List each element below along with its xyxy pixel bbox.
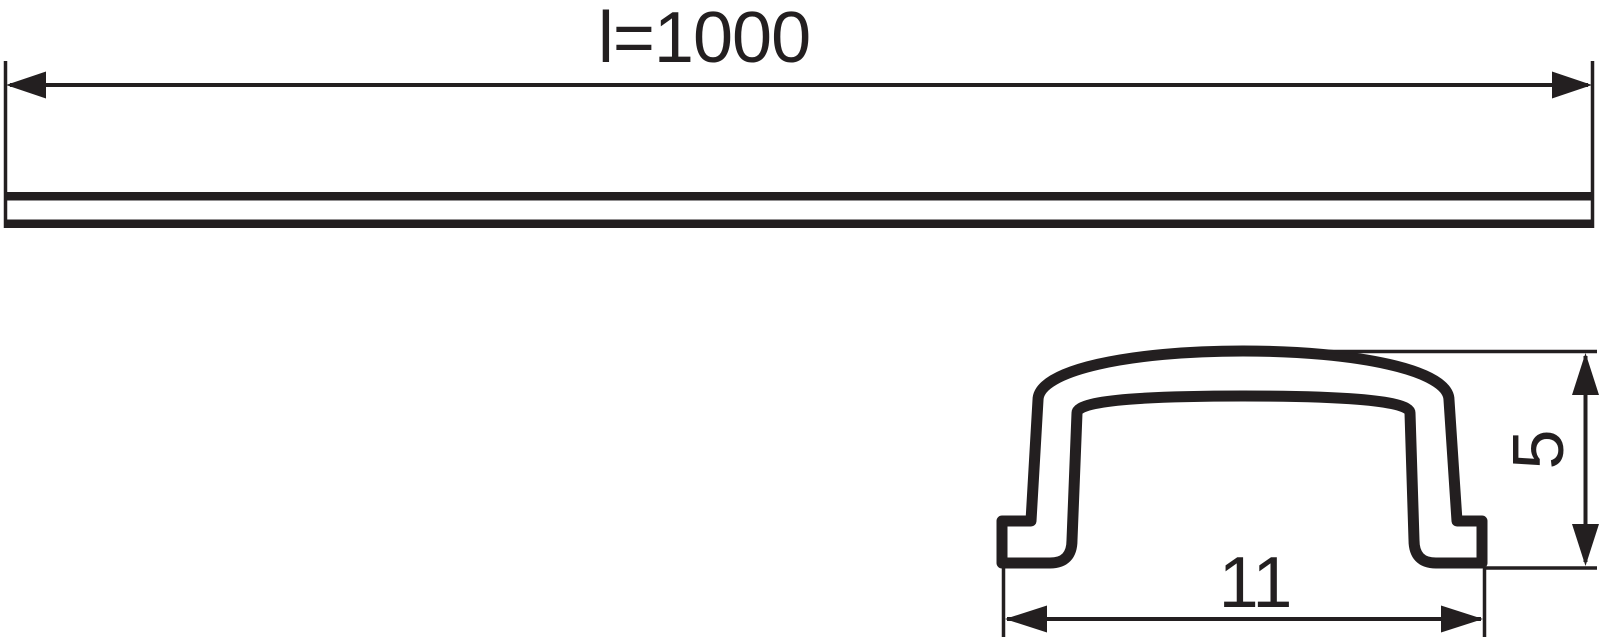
arrowhead-down-icon: [1572, 524, 1599, 566]
width-dimension-label: 11: [1219, 543, 1292, 623]
arrowhead-up-icon: [1572, 353, 1599, 395]
arrowhead-right-icon: [1552, 72, 1592, 99]
arrowhead-right-icon: [1441, 606, 1483, 633]
length-dimension-label: l=1000: [598, 0, 810, 78]
drawing-svg: l=1000 11 5: [0, 0, 1600, 637]
section-view: 11 5: [1002, 351, 1599, 637]
arrowhead-left-icon: [1005, 606, 1047, 633]
front-view: l=1000: [4, 0, 1594, 228]
profile-section-outline: [1002, 351, 1482, 563]
height-dimension-label: 5: [1499, 430, 1579, 469]
arrowhead-left-icon: [6, 72, 46, 99]
technical-drawing: l=1000 11 5: [0, 0, 1600, 637]
